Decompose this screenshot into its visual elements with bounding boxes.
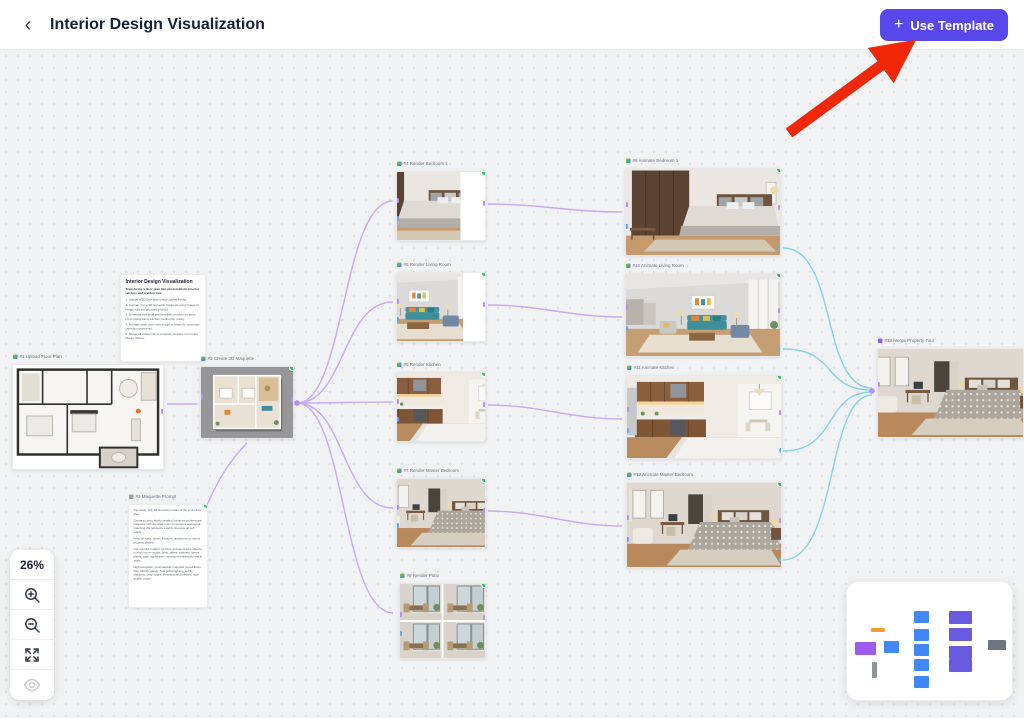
input-handle[interactable] [396, 417, 399, 422]
image-to-video-icon [627, 472, 632, 477]
minimap[interactable] [846, 581, 1013, 701]
prompt-note-card[interactable]: Top-down, fully 3D isometric render of t… [128, 504, 208, 608]
minimap-node-prompt [872, 662, 877, 678]
status-dot [777, 375, 782, 380]
plus-icon: + [894, 16, 903, 34]
use-template-button[interactable]: + Use Template [880, 9, 1008, 41]
instructions-title: Interior Design Visualization [126, 279, 201, 285]
output-handle[interactable] [483, 201, 486, 206]
instruction-step: 2. Convert it to a 3D isometric maquette… [126, 304, 201, 312]
image-to-image-icon [201, 356, 206, 361]
output-handle[interactable] [483, 402, 486, 407]
instruction-step: 5. Merge all videos into a complete prop… [126, 332, 201, 340]
node-label: #10 Animate Living Room [626, 263, 684, 268]
zoom-in-button[interactable] [10, 580, 54, 610]
minimap-node-maquette [884, 641, 899, 653]
input-handle[interactable] [396, 299, 399, 304]
status-dot [481, 272, 486, 277]
node-label: #12 Animate Master Bedroom [627, 472, 693, 477]
fit-view-button[interactable] [10, 640, 54, 670]
node-image[interactable] [626, 482, 782, 568]
minimap-node-floor-plan [855, 642, 876, 655]
expand-arrows-icon [24, 647, 40, 663]
status-dot [776, 273, 781, 278]
node-image[interactable] [396, 272, 486, 342]
node-label: #2 Maquette Prompt [129, 494, 176, 499]
output-handle[interactable] [778, 308, 781, 313]
input-handle[interactable] [626, 407, 629, 412]
prompt-paragraph: Create a clean, highly detailed miniatur… [134, 519, 203, 535]
minimap-node-render [914, 611, 929, 623]
magnifier-plus-icon [23, 586, 41, 604]
upload-media-icon [13, 354, 18, 359]
node-label: #8 Render Patio [400, 573, 439, 578]
node-label: #3 Create 3D Maquette [201, 356, 254, 361]
input-handle[interactable] [626, 537, 629, 542]
header: ‹ Interior Design Visualization + Use Te… [0, 0, 1024, 50]
output-handle[interactable] [161, 409, 164, 414]
input-handle[interactable] [396, 198, 399, 203]
output-handle[interactable] [483, 508, 486, 513]
zoom-toolbar: 26% [10, 550, 54, 700]
input-handle[interactable] [396, 505, 399, 510]
back-button[interactable]: ‹ [14, 11, 42, 39]
output-handle[interactable] [483, 302, 486, 307]
instructions-intro: Transforms a floor plan into photorealis… [126, 287, 201, 295]
status-dot [481, 372, 486, 377]
input-handle[interactable] [396, 399, 399, 404]
node-image[interactable] [626, 375, 782, 459]
image-to-image-icon [397, 468, 402, 473]
minimap-node-text [871, 628, 885, 632]
image-to-video-icon [626, 263, 631, 268]
input-handle[interactable] [396, 317, 399, 322]
video-output-handle[interactable] [779, 557, 782, 562]
node-label: #9 Animate Bedroom 1 [626, 158, 678, 163]
node-image[interactable] [399, 583, 486, 659]
prompt-paragraph: Top-down, fully 3D isometric render of t… [134, 509, 203, 517]
status-dot [481, 583, 486, 588]
output-handle[interactable] [779, 518, 782, 523]
image-to-video-icon [626, 158, 631, 163]
node-image[interactable] [625, 273, 781, 357]
input-handle[interactable] [625, 202, 628, 207]
instruction-step: 4. Animate each room with Image to Video… [126, 323, 201, 331]
minimap-node-render [914, 644, 929, 656]
node-image[interactable] [877, 348, 1024, 438]
node-label: #7 Render Master Bedroom [397, 468, 459, 473]
node-image[interactable] [200, 366, 294, 439]
video-output-handle[interactable] [779, 448, 782, 453]
status-dot [203, 504, 208, 509]
status-dot [776, 168, 781, 173]
node-image[interactable] [396, 478, 486, 548]
image-to-video-icon [627, 365, 632, 370]
input-handle[interactable] [626, 515, 629, 520]
output-handle[interactable] [483, 615, 486, 620]
minimap-node-render [914, 629, 929, 641]
zoom-level[interactable]: 26% [10, 550, 54, 580]
input-handle[interactable] [396, 216, 399, 221]
status-dot [481, 478, 486, 483]
node-image[interactable] [396, 171, 486, 241]
instruction-step: 1. Upload a 2D floor plan using Upload M… [126, 298, 201, 302]
prompt-paragraph: High-resolution, photorealistic material… [134, 566, 203, 582]
input-handle[interactable] [625, 305, 628, 310]
output-handle[interactable] [779, 410, 782, 415]
video-output-handle[interactable] [778, 346, 781, 351]
prompt-paragraph: Use colorful, modern furniture and decor… [134, 548, 203, 564]
input-handle[interactable] [396, 523, 399, 528]
instruction-step: 3. Generate eye-level photorealistic ren… [126, 313, 201, 321]
input-handle[interactable] [625, 224, 628, 229]
node-label: #4 Render Bedroom 1 [397, 161, 448, 166]
node-label: #13 Merge Property Tour [878, 338, 934, 343]
use-template-label: Use Template [910, 18, 994, 33]
minimap-node-animate [949, 659, 972, 672]
magnifier-minus-icon [23, 616, 41, 634]
visibility-button[interactable] [10, 670, 54, 700]
input-handle[interactable] [399, 612, 402, 617]
node-image[interactable] [396, 372, 486, 442]
minimap-node-render [914, 659, 929, 671]
page-title: Interior Design Visualization [50, 16, 265, 34]
video-output-handle[interactable] [778, 245, 781, 250]
node-label: #1 Upload Floor Plan [13, 354, 62, 359]
status-dot [777, 482, 782, 487]
text-prompt-icon [129, 494, 134, 499]
output-handle[interactable] [778, 205, 781, 210]
minimap-node-merge [988, 640, 1006, 650]
workflow-canvas[interactable]: #1 Upload Floor Plan Interior Design Vis… [0, 50, 1024, 718]
node-label: #11 Animate Kitchen [627, 365, 674, 370]
status-dot [481, 171, 486, 176]
status-dot [289, 366, 294, 371]
output-handle[interactable] [291, 397, 294, 402]
minimap-node-render [914, 676, 929, 688]
node-image[interactable] [625, 168, 781, 256]
image-to-image-icon [397, 161, 402, 166]
image-to-image-icon [400, 573, 405, 578]
minimap-node-animate [949, 628, 972, 641]
minimap-node-animate [949, 646, 972, 659]
prompt-paragraph: Keep all walls, doors, furniture, applia… [134, 537, 203, 545]
node-label: #6 Render Kitchen [397, 362, 441, 367]
node-label: #5 Render Living Room [397, 262, 451, 267]
eye-icon [23, 678, 41, 692]
image-to-image-icon [397, 262, 402, 267]
node-image[interactable] [12, 364, 164, 470]
zoom-out-button[interactable] [10, 610, 54, 640]
merge-videos-icon [878, 338, 883, 343]
input-handle[interactable] [200, 394, 203, 399]
minimap-node-animate [949, 611, 972, 624]
instructions-card[interactable]: Interior Design Visualization Transforms… [120, 274, 206, 362]
image-to-image-icon [397, 362, 402, 367]
